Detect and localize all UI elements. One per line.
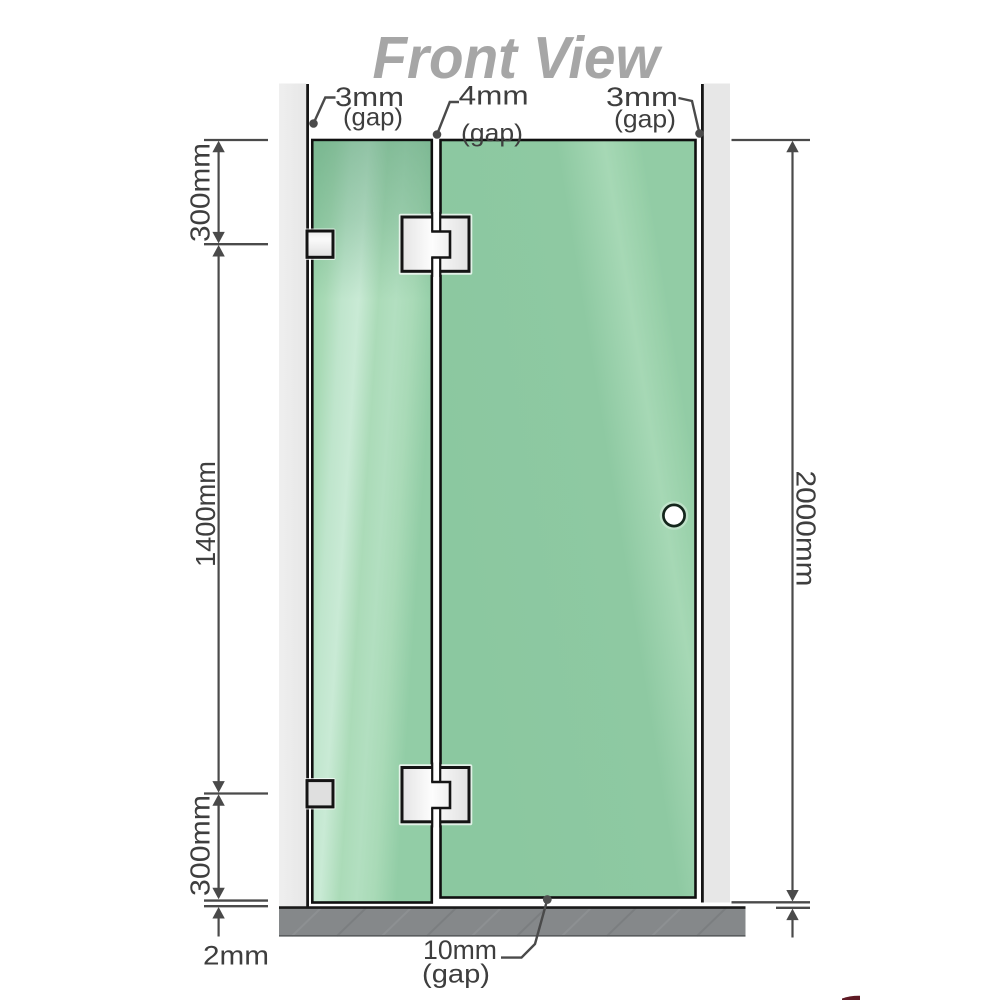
svg-text:300mm: 300mm	[185, 795, 216, 896]
svg-text:2mm: 2mm	[203, 941, 269, 971]
svg-text:1400mm: 1400mm	[190, 461, 221, 567]
svg-text:2000mm: 2000mm	[791, 471, 822, 587]
svg-text:300mm: 300mm	[185, 143, 216, 242]
svg-text:(gap): (gap)	[422, 959, 490, 989]
svg-text:4mm: 4mm	[459, 81, 529, 111]
svg-text:(gap): (gap)	[461, 120, 523, 148]
svg-text:(gap): (gap)	[343, 104, 403, 132]
svg-text:(gap): (gap)	[614, 106, 676, 134]
